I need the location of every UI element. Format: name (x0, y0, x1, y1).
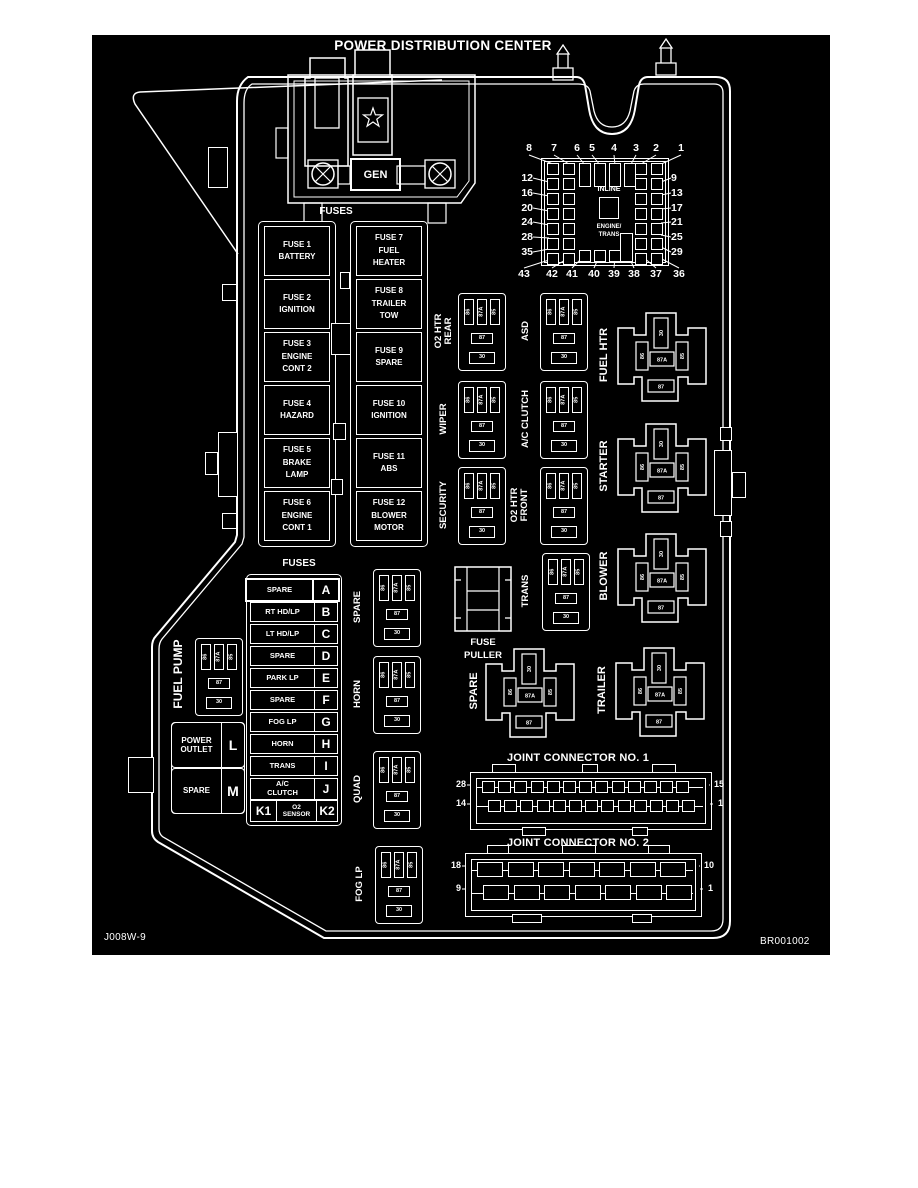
connector-cell (636, 885, 662, 900)
pin-number: 30 (394, 813, 400, 819)
relay-pin-30: 30 (551, 440, 577, 452)
gen-post-right (353, 50, 392, 155)
cavity-cell (563, 253, 575, 265)
cavity-cell (651, 178, 663, 190)
connector-cell (547, 781, 560, 793)
connector-tab (562, 845, 596, 854)
pin-number: 85 (548, 689, 554, 695)
pin-number: 30 (657, 665, 663, 671)
connector-pin-number: 15 (714, 779, 736, 789)
relay-pin-85: 85 (405, 757, 415, 783)
relay-pin-86: 86 (379, 757, 389, 783)
relay-pin-87A: 87A (559, 387, 569, 413)
pin-number: 85 (492, 309, 498, 315)
relay-pin-85: 85 (407, 852, 417, 878)
connector-pin-number: 28 (444, 779, 466, 789)
pin-number: 87 (394, 794, 400, 800)
relay-pin-86: 86 (379, 662, 389, 688)
left-edge-bump-side (205, 452, 218, 475)
fuse-slot-letter: A (312, 580, 338, 600)
connector-pin-number: 1 (718, 798, 740, 808)
cavity-cell (563, 208, 575, 220)
fuse-slot-row-e: PARK LPE (250, 668, 338, 688)
relay-quad: 8687A858730 (373, 751, 421, 829)
page: POWER DISTRIBUTION CENTER GENFUSESFUSE 1… (0, 0, 918, 1188)
connector-tab (487, 845, 509, 854)
gen-post-left (305, 58, 348, 166)
right-edge-bump-side (732, 472, 746, 498)
connector-pin-number: 18 (439, 860, 461, 870)
relay-blower-2: 30868587A87 (617, 533, 707, 623)
pin-number: 86 (381, 672, 387, 678)
relay-label-security: SECURITY (439, 445, 449, 565)
relay-pin-87: 87 (471, 333, 493, 344)
relay-pin-87A: 87A (392, 757, 402, 783)
pin-number: 86 (383, 862, 389, 868)
pin-number: 87 (563, 596, 569, 602)
connector-cell (553, 800, 566, 812)
connector-cell (660, 862, 686, 877)
pin-number: 86 (466, 309, 472, 315)
outlet-slot-letter: M (221, 769, 244, 813)
fuse-slot-letter: F (314, 691, 337, 709)
pin-number: 30 (479, 529, 485, 535)
relay-pin-30: 30 (551, 352, 577, 364)
pin-number: 87 (479, 336, 485, 342)
connector-tab (492, 764, 516, 773)
cavity-cell (651, 208, 663, 220)
pin-number: 87 (396, 889, 402, 895)
cavity-cell (563, 163, 575, 175)
pin-number: 85 (407, 767, 413, 773)
cavity-number-right-4: 25 (671, 231, 697, 243)
cavity-number-bottom-2: 41 (560, 268, 584, 280)
cavity-number-bottom-5: 38 (622, 268, 646, 280)
relay-pin-87: 87 (386, 696, 408, 707)
fuse-slot-letter: J (314, 779, 337, 799)
outlet-row-l: POWER OUTLETL (171, 722, 245, 768)
connector-cell (601, 800, 614, 812)
connector-cell (644, 781, 657, 793)
relay-a-c-clutch: 8687A858730 (540, 381, 588, 459)
cavity-cell (635, 193, 647, 205)
pin-number: 30 (659, 441, 665, 447)
relay-pin-85: 85 (574, 559, 584, 585)
fuse-slot-label: SPARE (251, 691, 314, 709)
pin-number: 87A (561, 395, 567, 405)
relay-pin-85: 85 (405, 575, 415, 601)
fuse-slot-label: RT HD/LP (251, 603, 314, 621)
fuse-slot-row-f: SPAREF (250, 690, 338, 710)
fuse-column-tab-2 (333, 423, 346, 440)
pin-number: 87 (658, 496, 664, 502)
fuse-slot-letter: G (314, 713, 337, 731)
cavity-number-top-0: 8 (519, 142, 539, 154)
pin-number: 87A (479, 307, 485, 317)
cavity-cell (579, 250, 591, 262)
relay-pin-87: 87 (208, 678, 230, 689)
relay-spare: 8687A858730 (373, 569, 421, 647)
relay-pin-85: 85 (572, 299, 582, 325)
bolt-cross-0 (316, 167, 331, 182)
pin-number: 87 (479, 510, 485, 516)
cavity-number-top-7: 1 (671, 142, 691, 154)
pin-number: 30 (394, 631, 400, 637)
pin-number: 86 (548, 483, 554, 489)
inline-label: INLINE (587, 186, 631, 193)
connector-cell (483, 885, 509, 900)
fuse-box-8: FUSE 8 TRAILER TOW (356, 279, 422, 329)
connector-pin-number: 1 (708, 883, 730, 893)
relay-label-starter-1: STARTER (599, 406, 609, 526)
fuse-slot-label: O2 SENSOR (277, 801, 316, 821)
cavity-cell (563, 238, 575, 250)
connector-cell (599, 862, 625, 877)
relay-horn: 8687A858730 (373, 656, 421, 734)
gen-bar-right (397, 166, 425, 184)
connector-tab (582, 764, 598, 773)
fuse-slot-label: LT HD/LP (251, 625, 314, 643)
pin-number: 30 (527, 666, 533, 672)
connector-cell (628, 781, 641, 793)
pin-number: 87A (394, 583, 400, 593)
gen-bar-left (338, 166, 350, 184)
relay-pin-87A: 87A (392, 662, 402, 688)
relay-pin-86: 86 (464, 299, 474, 325)
left-edge-tab-2 (222, 513, 237, 529)
connector-cell (569, 862, 595, 877)
connector-cell (660, 781, 673, 793)
outlet-label: SPARE (172, 769, 221, 813)
connector-tab (632, 827, 648, 836)
cavity-cell-tall (579, 163, 591, 187)
fuse-puller-label: FUSE PULLER (453, 636, 513, 662)
fuse-slot-row-b: RT HD/LPB (250, 602, 338, 622)
connector-cell (520, 800, 533, 812)
relay-pin-86: 86 (464, 473, 474, 499)
wedge-slot (208, 147, 228, 188)
fuse-box-12: FUSE 12 BLOWER MOTOR (356, 491, 422, 541)
fuse-slot-label: FOG LP (251, 713, 314, 731)
relay-fog-lp: 8687A858730 (375, 846, 423, 924)
cavity-number-left-1: 16 (507, 187, 533, 199)
relay-label-blower-2: BLOWER (599, 516, 609, 636)
connector-cell (504, 800, 517, 812)
pentastar-box (358, 98, 388, 142)
pin-number: 87A (394, 765, 400, 775)
relay-security: 8687A858730 (458, 467, 506, 545)
relay-pin-87A: 87A (561, 559, 571, 585)
connector-cell (563, 781, 576, 793)
relay-pin-30: 30 (384, 810, 410, 822)
relay-pin-30: 30 (469, 526, 495, 538)
left-edge-bump (218, 432, 238, 497)
pin-number: 87 (394, 612, 400, 618)
pin-number: 85 (409, 862, 415, 868)
relay-pin-86: 86 (546, 387, 556, 413)
cavity-cell (563, 223, 575, 235)
relay-pin-87A: 87A (477, 387, 487, 413)
relay-pin-87A: 87A (394, 852, 404, 878)
cavity-cell-tall (594, 163, 606, 187)
pin-number: 87 (658, 606, 664, 612)
fuse-box-4: FUSE 4 HAZARD (264, 385, 330, 435)
pin-number: 86 (548, 309, 554, 315)
relay-pin-87: 87 (386, 609, 408, 620)
connector-cell (579, 781, 592, 793)
pin-number: 30 (479, 443, 485, 449)
right-edge-bump (714, 450, 732, 516)
diagram-code-left: J008W-9 (104, 932, 146, 943)
connector-cell (666, 800, 679, 812)
pin-number: 87A (525, 694, 535, 700)
relay-asd: 8687A858730 (540, 293, 588, 371)
connector-cell (618, 800, 631, 812)
relay-label-fuel-pump: FUEL PUMP (173, 614, 183, 734)
connector-pin-number: 10 (704, 860, 726, 870)
cavity-cell (547, 238, 559, 250)
fuse-slot-label: A/C CLUTCH (251, 779, 314, 799)
pin-number: 86 (638, 688, 644, 694)
connector-tab (632, 914, 652, 923)
connector-cell (650, 800, 663, 812)
pin-number: 85 (407, 672, 413, 678)
fuse-slot-row-j: A/C CLUTCHJ (250, 778, 338, 800)
cavity-number-right-1: 13 (671, 187, 697, 199)
fuse-slot-row-h: HORNH (250, 734, 338, 754)
fuse-box-11: FUSE 11 ABS (356, 438, 422, 488)
cavity-cell (651, 253, 663, 265)
connector-cell (538, 862, 564, 877)
cavity-cell (651, 193, 663, 205)
connector-tab (512, 914, 542, 923)
fuses-caption-lower: FUSES (259, 558, 339, 569)
pin-number: 30 (561, 443, 567, 449)
chrysler-pentastar-icon (364, 108, 383, 126)
relay-label-trans: TRANS (521, 531, 531, 651)
relay-pin-87: 87 (471, 421, 493, 432)
outlet-row-m: SPAREM (171, 768, 245, 814)
fuse-slot-row-a: SPAREA (245, 578, 340, 602)
cavity-cell (547, 163, 559, 175)
relay-pin-30: 30 (553, 612, 579, 624)
pin-number: 85 (574, 309, 580, 315)
pin-number: 87 (394, 699, 400, 705)
fuse-slot-label: HORN (251, 735, 314, 753)
cavity-number-top-5: 3 (626, 142, 646, 154)
pin-number: 30 (561, 529, 567, 535)
cavity-number-left-4: 28 (507, 231, 533, 243)
pin-number: 85 (229, 654, 235, 660)
fuse-slot-letter: D (314, 647, 337, 665)
cavity-cell (651, 238, 663, 250)
cavity-cell (594, 250, 606, 262)
pin-number: 87A (479, 395, 485, 405)
pin-number: 87 (216, 681, 222, 687)
fuse-slot-letter: B (314, 603, 337, 621)
relay-pin-85: 85 (490, 299, 500, 325)
pin-number: 86 (640, 353, 646, 359)
connector-cell (682, 800, 695, 812)
pin-number: 30 (563, 615, 569, 621)
connector-cell (537, 800, 550, 812)
relay-pin-87A: 87A (477, 473, 487, 499)
relay-pin-85: 85 (490, 387, 500, 413)
cavity-cell-tall (609, 163, 621, 187)
relay-fuel-pump: 8687A858730 (195, 638, 243, 716)
pin-number: 85 (492, 483, 498, 489)
relay-o2-htr-rear: 8687A858730 (458, 293, 506, 371)
relay-pin-87: 87 (553, 421, 575, 432)
pin-number: 85 (574, 397, 580, 403)
fuses-caption-top: FUSES (302, 206, 370, 217)
cavity-number-top-1: 7 (544, 142, 564, 154)
connector-cell (508, 862, 534, 877)
relay-pin-30: 30 (386, 905, 412, 917)
relay-trans: 8687A858730 (542, 553, 590, 631)
bolt-cross-1 (433, 167, 448, 182)
fuse-box-5: FUSE 5 BRAKE LAMP (264, 438, 330, 488)
pin-number: 85 (574, 483, 580, 489)
connector-cell (544, 885, 570, 900)
pin-number: 30 (659, 551, 665, 557)
cavity-number-bottom-6: 37 (644, 268, 668, 280)
fuse-column-tab-3 (331, 479, 343, 495)
cavity-number-top-6: 2 (646, 142, 666, 154)
pin-number: 86 (508, 689, 514, 695)
relay-pin-87A: 87A (392, 575, 402, 601)
diagram-panel: POWER DISTRIBUTION CENTER GENFUSESFUSE 1… (92, 35, 830, 955)
relay-fuel-htr-0: 30868587A87 (617, 312, 707, 402)
fuse-slot-label: SPARE (251, 647, 314, 665)
cavity-cell (563, 193, 575, 205)
pin-number: 87A (657, 469, 667, 475)
pin-number: 85 (678, 688, 684, 694)
pin-number: 87 (479, 424, 485, 430)
cavity-number-left-2: 20 (507, 202, 533, 214)
cavity-cell (547, 208, 559, 220)
pin-number: 86 (466, 397, 472, 403)
relay-pin-86: 86 (546, 299, 556, 325)
connector-tab (522, 827, 546, 836)
fuse-slot-letter: I (314, 757, 337, 775)
pin-number: 85 (680, 353, 686, 359)
fuse-slot-row-g: FOG LPG (250, 712, 338, 732)
pin-number: 87A (563, 567, 569, 577)
pin-number: 87A (396, 860, 402, 870)
connector-cell (605, 885, 631, 900)
fuse-slot-letter: H (314, 735, 337, 753)
fuse-slot-label: TRANS (251, 757, 314, 775)
cavity-cell (635, 253, 647, 265)
connector-cell (477, 862, 503, 877)
connector-cell (612, 781, 625, 793)
fuse-slot-row-k: K1O2 SENSORK2 (250, 800, 338, 822)
pin-number: 86 (203, 654, 209, 660)
connector-cell (531, 781, 544, 793)
pin-number: 86 (548, 397, 554, 403)
connector-tab (652, 764, 676, 773)
cavity-number-left-5: 35 (507, 246, 533, 258)
relay-pin-30: 30 (469, 352, 495, 364)
relay-pin-87A: 87A (477, 299, 487, 325)
relay-pin-87A: 87A (559, 299, 569, 325)
fuse-slot-letter: K2 (316, 801, 337, 821)
fuse-slot-row-i: TRANSI (250, 756, 338, 776)
connector-pin-number: 9 (439, 883, 461, 893)
pin-number: 87A (655, 693, 665, 699)
pin-number: 87A (216, 652, 222, 662)
connector-cell (569, 800, 582, 812)
fuse-column-tab-1 (331, 323, 351, 355)
mounting-post-left (553, 45, 573, 80)
relay-pin-87: 87 (553, 333, 575, 344)
cavity-number-right-0: 9 (671, 172, 697, 184)
cavity-cell-tall (624, 163, 636, 187)
relay-pin-30: 30 (384, 628, 410, 640)
fuse-puller-drawing (455, 567, 511, 631)
pin-number: 87 (656, 720, 662, 726)
relay-pin-87: 87 (555, 593, 577, 604)
cavity-number-left-0: 12 (507, 172, 533, 184)
relay-label-fog-lp: FOG LP (355, 824, 365, 944)
relay-pin-87A: 87A (559, 473, 569, 499)
fuse-box-2: FUSE 2 IGNITION (264, 279, 330, 329)
fuse-box-10: FUSE 10 IGNITION (356, 385, 422, 435)
connector-cell (488, 800, 501, 812)
inline-connector-box (599, 197, 619, 219)
relay-starter-1: 30868587A87 (617, 423, 707, 513)
pin-number: 85 (492, 397, 498, 403)
pin-number: 30 (394, 718, 400, 724)
fuse-slot-letter: C (314, 625, 337, 643)
pin-number: 86 (381, 585, 387, 591)
pin-number: 86 (640, 574, 646, 580)
cavity-number-right-5: 29 (671, 246, 697, 258)
cavity-cell (635, 178, 647, 190)
relay-pin-87: 87 (388, 886, 410, 897)
fuse-slot-row-d: SPARED (250, 646, 338, 666)
fuse-column-tab-0 (340, 272, 350, 289)
cavity-cell (635, 223, 647, 235)
joint-connector-title-1: JOINT CONNECTOR NO. 1 (458, 752, 698, 764)
cavity-number-bottom-7: 36 (667, 268, 691, 280)
pin-number: 85 (576, 569, 582, 575)
relay-pin-85: 85 (405, 662, 415, 688)
connector-cell (676, 781, 689, 793)
pin-number: 30 (659, 330, 665, 336)
pin-number: 87A (479, 481, 485, 491)
pin-number: 87A (394, 670, 400, 680)
pin-number: 86 (550, 569, 556, 575)
relay-pin-30: 30 (551, 526, 577, 538)
pin-number: 85 (680, 464, 686, 470)
pin-number: 85 (407, 585, 413, 591)
fuse-slot-letter: K1 (251, 801, 277, 821)
cavity-cell (563, 178, 575, 190)
connector-cell (666, 885, 692, 900)
right-edge-tab-2 (720, 521, 732, 537)
outlet-slot-letter: L (221, 723, 244, 767)
connector-cell (595, 781, 608, 793)
connector-tab (648, 845, 670, 854)
relay-pin-85: 85 (490, 473, 500, 499)
fuse-box-9: FUSE 9 SPARE (356, 332, 422, 382)
gen-side-bracket (276, 128, 288, 158)
relay-pin-86: 86 (201, 644, 211, 670)
cavity-cell (547, 223, 559, 235)
cavity-number-right-2: 17 (671, 202, 697, 214)
